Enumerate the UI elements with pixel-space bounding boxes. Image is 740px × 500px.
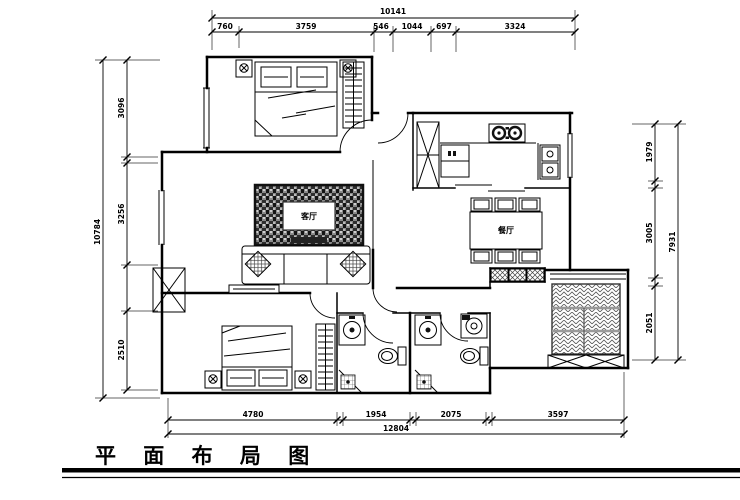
- dim-left-seg: 3096: [117, 98, 126, 119]
- dim-bottom-seg: 4780: [243, 410, 264, 419]
- elevator-shaft-icon: [153, 268, 185, 312]
- dim-bottom-seg: 3597: [548, 410, 569, 419]
- shower-area: [339, 370, 362, 393]
- dim-right-seg: 1979: [645, 142, 654, 163]
- nightstand-icon: [295, 371, 311, 388]
- shower-area: [415, 370, 438, 393]
- dim-top-seg: 1044: [402, 22, 423, 31]
- dim-bottom-seg: 1954: [366, 410, 387, 419]
- sink-icon: [540, 145, 560, 179]
- bathroom1-door-arc: [363, 313, 393, 343]
- hall-door-arc: [373, 288, 397, 312]
- tv-feature-wall: 客厅: [255, 185, 363, 245]
- entry-door-arc: [378, 113, 408, 143]
- coffee-table-icon: [229, 285, 279, 293]
- bathroom-1: [339, 315, 406, 393]
- bedroom2-door-arc: [310, 293, 335, 318]
- bed-icon: [255, 62, 337, 136]
- toilet-icon: [379, 347, 407, 365]
- sofa-icon: [242, 246, 370, 284]
- kitchen: [417, 122, 560, 188]
- dim-top-seg: 760: [217, 22, 233, 31]
- dim-left-seg: 3256: [117, 204, 126, 225]
- title-block: 平 面 布 局 图: [62, 444, 740, 478]
- dim-bottom-total: 12804: [383, 424, 409, 433]
- master-bedroom: [236, 60, 364, 136]
- right-dimension-chain: 1979 3005 2051 7931: [632, 121, 686, 364]
- balcony-window: [550, 274, 626, 279]
- dining-chair-icon: [471, 250, 540, 263]
- bedroom1-window: [203, 88, 210, 148]
- dim-top-seg: 3759: [296, 22, 317, 31]
- floor-plan-drawing: 10141 760 3759 546 1044 697 3324 10784 3…: [0, 0, 740, 500]
- kitchen-sliding-door: [455, 185, 525, 191]
- toilet-icon: [461, 347, 489, 365]
- tv-icon: [291, 237, 327, 243]
- dim-right-seg: 2051: [645, 313, 654, 334]
- bedroom1-door-arc: [340, 120, 372, 152]
- dim-top-seg: 697: [436, 22, 452, 31]
- washbasin-icon: [415, 315, 441, 345]
- dim-top-seg: 3324: [505, 22, 526, 31]
- top-dimension-chain: 10141 760 3759 546 1044 697 3324: [209, 7, 579, 52]
- bed-icon: [222, 326, 292, 390]
- hall-cabinet-icon: [491, 269, 544, 281]
- dim-left-total: 10784: [93, 219, 102, 245]
- stove-icon: [489, 124, 525, 142]
- title-underline-thick: [62, 468, 740, 473]
- living-room-window: [159, 190, 164, 245]
- nightstand-icon: [236, 60, 252, 77]
- balcony-floor: [552, 284, 620, 354]
- dim-left-seg: 2510: [117, 340, 126, 361]
- dining-room-label: 餐厅: [497, 225, 514, 235]
- dining-chair-icon: [471, 198, 540, 211]
- nightstand-icon: [205, 371, 221, 388]
- balcony: [548, 284, 624, 368]
- dim-right-total: 7931: [668, 232, 677, 253]
- floor-plan-page: 10141 760 3759 546 1044 697 3324 10784 3…: [0, 0, 740, 500]
- dim-top-seg: 546: [373, 22, 389, 31]
- fridge-icon: [417, 122, 439, 188]
- living-room: 客厅: [229, 185, 370, 293]
- living-room-label: 客厅: [300, 211, 317, 221]
- kitchen-window: [568, 133, 572, 178]
- dining-room: 餐厅: [470, 198, 544, 281]
- second-bedroom: [205, 324, 335, 390]
- bathroom-2: [415, 314, 488, 393]
- dim-right-seg: 3005: [645, 223, 654, 244]
- left-dimension-chain: 10784 3096 3256 2510: [93, 57, 160, 402]
- kitchen-cabinet-icon: [441, 145, 469, 177]
- wardrobe-icon: [316, 324, 335, 390]
- washing-machine-icon: [461, 314, 487, 338]
- dim-top-total: 10141: [380, 7, 406, 16]
- window-seat-icon: [548, 355, 624, 368]
- washbasin-icon: [339, 315, 365, 345]
- page-title: 平 面 布 局 图: [95, 444, 319, 468]
- dim-bottom-seg: 2075: [441, 410, 462, 419]
